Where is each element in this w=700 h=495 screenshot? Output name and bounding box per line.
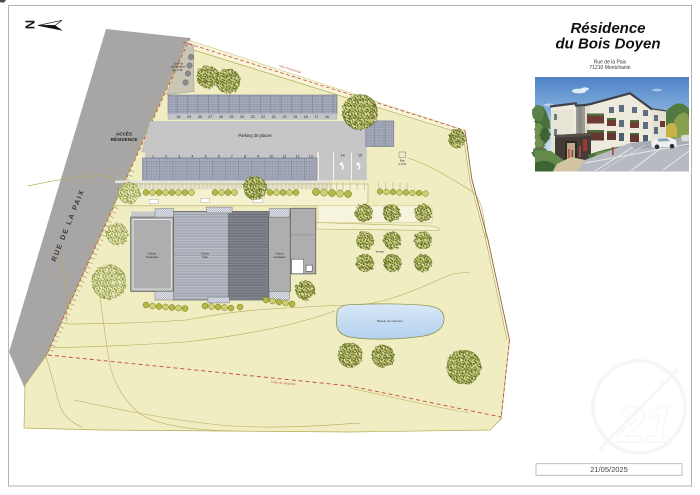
svg-text:terrassée: terrassée — [274, 255, 286, 259]
svg-text:6: 6 — [218, 154, 220, 158]
svg-text:14: 14 — [341, 154, 345, 158]
svg-text:23: 23 — [251, 115, 255, 119]
svg-text:20: 20 — [283, 115, 287, 119]
svg-text:11: 11 — [283, 154, 287, 158]
svg-text:16: 16 — [325, 115, 329, 119]
svg-text:Terrassée: Terrassée — [146, 255, 159, 259]
svg-text:7: 7 — [231, 154, 233, 158]
svg-text:Verger: Verger — [376, 250, 385, 254]
svg-text:des O.M.: des O.M. — [172, 68, 183, 72]
svg-text:21: 21 — [616, 397, 673, 453]
svg-text:ACCÈS: ACCÈS — [116, 130, 132, 137]
svg-text:8: 8 — [244, 154, 246, 158]
svg-text:5: 5 — [205, 154, 207, 158]
svg-text:19: 19 — [293, 115, 297, 119]
svg-text:71210 Montchanin: 71210 Montchanin — [589, 65, 630, 71]
svg-text:3: 3 — [178, 154, 180, 158]
svg-text:4: 4 — [191, 154, 193, 158]
svg-text:24: 24 — [240, 115, 244, 119]
svg-text:10: 10 — [269, 154, 273, 158]
svg-text:18: 18 — [304, 115, 308, 119]
svg-text:21: 21 — [272, 115, 276, 119]
svg-text:25: 25 — [230, 115, 234, 119]
svg-text:12: 12 — [296, 154, 300, 158]
svg-text:29: 29 — [187, 115, 191, 119]
svg-text:Tuile: Tuile — [202, 255, 208, 259]
svg-text:du Bois Doyen: du Bois Doyen — [555, 36, 660, 53]
svg-text:27: 27 — [208, 115, 212, 119]
svg-text:15: 15 — [358, 154, 362, 158]
svg-text:9: 9 — [257, 154, 259, 158]
svg-text:à O.M.: à O.M. — [398, 162, 407, 166]
svg-text:26: 26 — [219, 115, 223, 119]
svg-text:RÉSIDENCE: RÉSIDENCE — [111, 135, 138, 142]
svg-text:Bassin de rétention: Bassin de rétention — [377, 319, 403, 323]
svg-text:22: 22 — [261, 115, 265, 119]
svg-text:21/05/2025: 21/05/2025 — [590, 465, 628, 474]
svg-text:Résidence: Résidence — [570, 20, 645, 37]
svg-text:17: 17 — [314, 115, 318, 119]
svg-text:28: 28 — [198, 115, 202, 119]
svg-text:13: 13 — [309, 154, 313, 158]
svg-text:Parking 30 places: Parking 30 places — [238, 133, 271, 138]
svg-text:1: 1 — [152, 154, 154, 158]
svg-text:2: 2 — [165, 154, 167, 158]
svg-text:N: N — [23, 20, 38, 29]
svg-text:30: 30 — [177, 115, 181, 119]
